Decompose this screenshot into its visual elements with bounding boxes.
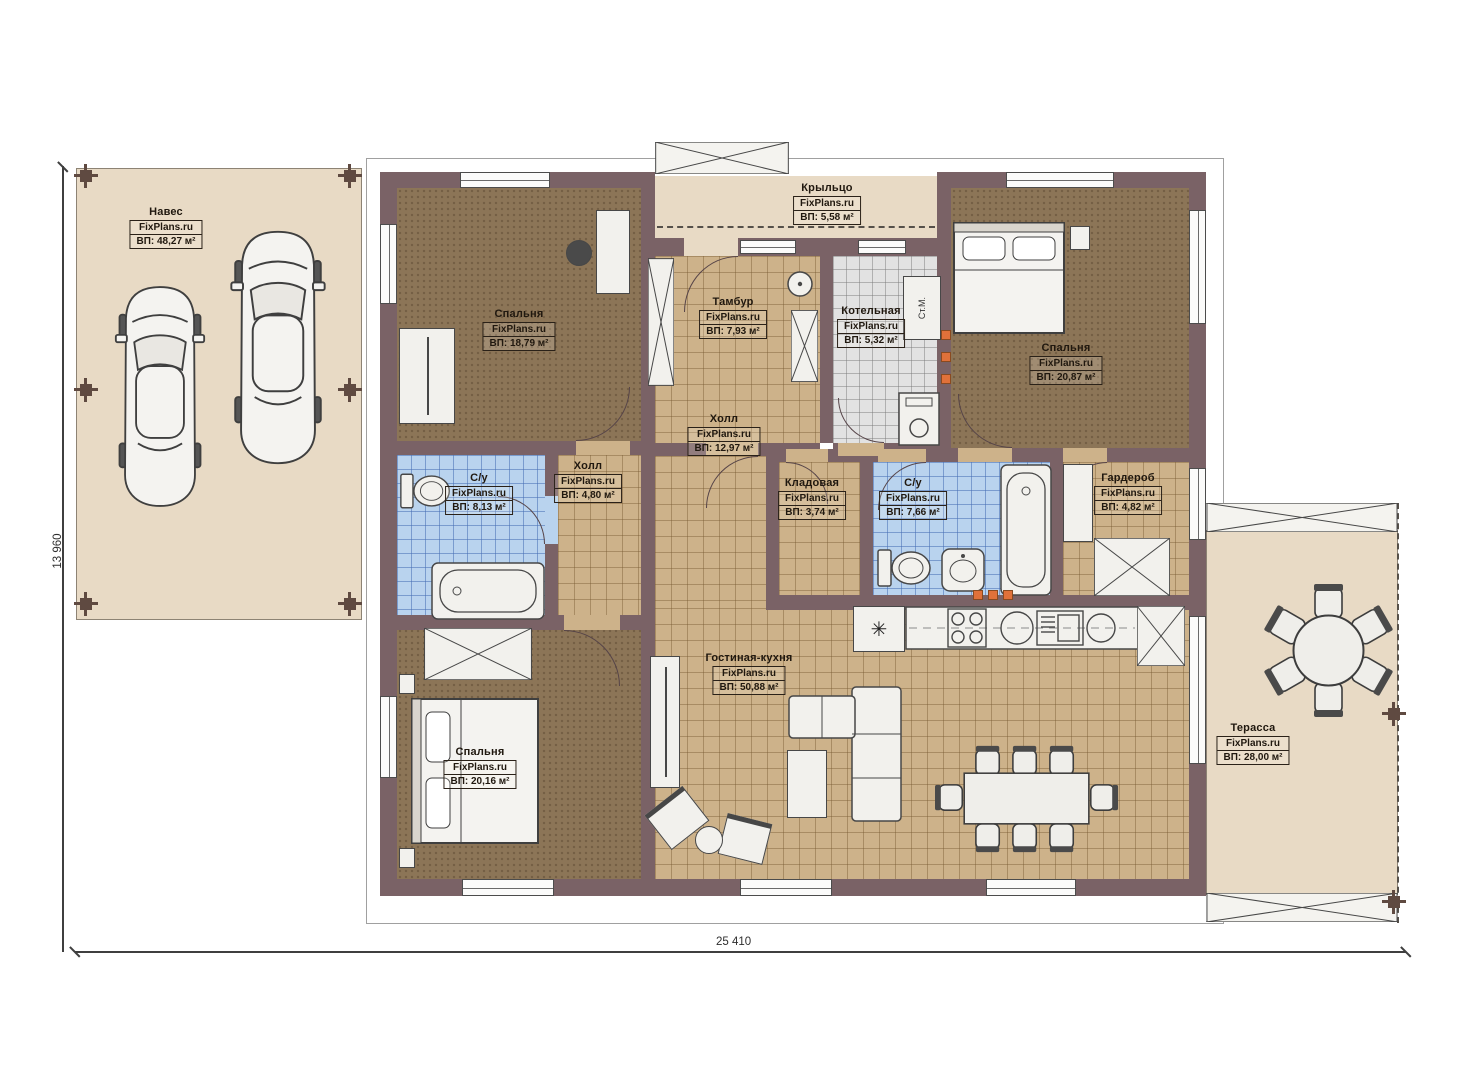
wardrobe-icon — [791, 310, 818, 382]
dimension-line-bottom — [75, 951, 1406, 953]
door-gap — [564, 615, 620, 630]
room-area: ВП: 7,93 м² — [700, 325, 766, 338]
window — [740, 240, 796, 254]
steps-icon — [655, 142, 789, 174]
window — [460, 172, 550, 188]
car-icon — [228, 226, 328, 469]
room-area: ВП: 48,27 м² — [130, 235, 201, 248]
porch-roof-line — [657, 226, 935, 228]
wall — [860, 462, 873, 595]
room-name: Спальня — [1029, 342, 1102, 354]
radiator-icon — [941, 352, 951, 362]
dimension-height: 13 960 — [52, 521, 64, 581]
door-gap — [545, 496, 558, 544]
column-icon — [80, 598, 92, 610]
room-area: ВП: 20,16 м² — [444, 775, 515, 788]
chair-icon — [566, 240, 592, 266]
room-area: ВП: 20,87 м² — [1030, 371, 1101, 384]
watermark: FixPlans.ru — [1217, 737, 1288, 751]
snowflake-icon: ✳ — [871, 617, 888, 642]
door-gap — [878, 449, 926, 462]
column-icon — [1388, 708, 1400, 720]
washing-machine-label: Ст.М. — [917, 297, 927, 319]
room-area: ВП: 4,82 м² — [1095, 501, 1161, 514]
watermark: FixPlans.ru — [838, 320, 904, 334]
room-label-bath2: С/у FixPlans.ru ВП: 7,66 м² — [879, 477, 947, 520]
bathtub-icon — [431, 562, 545, 620]
wardrobe-icon — [1094, 538, 1170, 596]
room-area: ВП: 5,58 м² — [794, 211, 860, 224]
watermark: FixPlans.ru — [700, 311, 766, 325]
room-name: Холл — [554, 460, 622, 472]
room-label-porch: Крыльцо FixPlans.ru ВП: 5,58 м² — [793, 182, 861, 225]
dining-table-icon — [935, 738, 1120, 860]
column-icon — [80, 384, 92, 396]
watermark: FixPlans.ru — [794, 197, 860, 211]
dimension-width: 25 410 — [716, 936, 751, 948]
column-icon — [80, 170, 92, 182]
room-name: Кладовая — [778, 477, 846, 489]
window — [380, 224, 397, 304]
watermark: FixPlans.ru — [779, 492, 845, 506]
room-name: С/у — [879, 477, 947, 489]
room-label-hall2: Холл FixPlans.ru ВП: 4,80 м² — [554, 460, 622, 503]
room-name: Крыльцо — [793, 182, 861, 194]
wardrobe-icon — [648, 258, 674, 386]
column-icon — [344, 598, 356, 610]
watermark: FixPlans.ru — [1030, 357, 1101, 371]
room-name: Навес — [129, 206, 202, 218]
coffee-table — [787, 750, 827, 818]
room-area: ВП: 12,97 м² — [688, 442, 759, 455]
room-area: ВП: 18,79 м² — [483, 337, 554, 350]
radiator-icon — [941, 330, 951, 340]
door-gap — [576, 441, 630, 455]
bed-icon — [953, 222, 1065, 334]
window — [462, 879, 554, 896]
room-label-tambour: Тамбур FixPlans.ru ВП: 7,93 м² — [699, 296, 767, 339]
lamp-icon — [786, 270, 814, 298]
steps-icon — [1206, 893, 1398, 922]
wardrobe-icon — [424, 628, 532, 680]
sink-icon — [941, 548, 985, 592]
room-name: Тамбур — [699, 296, 767, 308]
bathtub-icon — [1000, 464, 1052, 596]
room-label-carport: Навес FixPlans.ru ВП: 48,27 м² — [129, 206, 202, 249]
door-gap — [684, 238, 738, 256]
cabinet-icon — [1137, 606, 1185, 666]
window — [1006, 172, 1114, 188]
room-label-bedroom3: Спальня FixPlans.ru ВП: 20,16 м² — [443, 746, 516, 789]
watermark: FixPlans.ru — [130, 221, 201, 235]
room-area: ВП: 5,32 м² — [838, 334, 904, 347]
room-area: ВП: 50,88 м² — [713, 681, 784, 694]
window — [380, 696, 397, 778]
room-label-bath1: С/у FixPlans.ru ВП: 8,13 м² — [445, 472, 513, 515]
watermark: FixPlans.ru — [713, 667, 784, 681]
watermark: FixPlans.ru — [446, 487, 512, 501]
room-area: ВП: 8,13 м² — [446, 501, 512, 514]
wall — [766, 449, 779, 608]
fridge-icon: ✳ — [853, 606, 905, 652]
boiler-icon — [898, 392, 940, 446]
tv-stand — [650, 656, 680, 788]
room-label-living: Гостиная-кухня FixPlans.ru ВП: 50,88 м² — [705, 652, 792, 695]
round-table-icon — [1256, 578, 1401, 723]
steps-icon — [1206, 503, 1398, 532]
watermark: FixPlans.ru — [483, 323, 554, 337]
room-name: С/у — [445, 472, 513, 484]
room-area: ВП: 28,00 м² — [1217, 751, 1288, 764]
column-icon — [344, 170, 356, 182]
car-icon — [114, 280, 206, 513]
kitchen-counter — [905, 606, 1139, 650]
radiator-icon — [941, 374, 951, 384]
watermark: FixPlans.ru — [1095, 487, 1161, 501]
desk — [596, 210, 630, 294]
room-label-storage: Кладовая FixPlans.ru ВП: 3,74 м² — [778, 477, 846, 520]
watermark: FixPlans.ru — [688, 428, 759, 442]
room-label-wardrobe: Гардероб FixPlans.ru ВП: 4,82 м² — [1094, 472, 1162, 515]
shelf — [1063, 464, 1093, 542]
room-name: Спальня — [443, 746, 516, 758]
wall — [820, 256, 833, 443]
floor-plan: Ст.М. — [0, 0, 1473, 1080]
pouf — [695, 826, 723, 854]
column-icon — [344, 384, 356, 396]
toilet-icon — [876, 546, 934, 590]
socket-icon — [1003, 590, 1013, 600]
room-name: Холл — [687, 413, 760, 425]
room-label-bedroom1: Спальня FixPlans.ru ВП: 18,79 м² — [482, 308, 555, 351]
window — [740, 879, 832, 896]
room-label-terrace: Терасса FixPlans.ru ВП: 28,00 м² — [1216, 722, 1289, 765]
socket-icon — [973, 590, 983, 600]
room-name: Терасса — [1216, 722, 1289, 734]
door-gap — [958, 448, 1012, 462]
room-label-hall: Холл FixPlans.ru ВП: 12,97 м² — [687, 413, 760, 456]
nightstand — [1070, 226, 1090, 250]
cabinet-icon — [399, 328, 455, 424]
door-gap — [1063, 448, 1107, 462]
window — [858, 240, 906, 254]
column-icon — [1388, 896, 1400, 908]
window — [1189, 210, 1206, 324]
terrace-door — [1189, 616, 1206, 764]
nightstand — [399, 848, 415, 868]
room-area: ВП: 4,80 м² — [555, 489, 621, 502]
window — [1189, 468, 1206, 540]
room-name: Гостиная-кухня — [705, 652, 792, 664]
room-name: Гардероб — [1094, 472, 1162, 484]
washing-machine: Ст.М. — [903, 276, 941, 340]
room-area: ВП: 3,74 м² — [779, 506, 845, 519]
watermark: FixPlans.ru — [555, 475, 621, 489]
room-area: ВП: 7,66 м² — [880, 506, 946, 519]
window — [986, 879, 1076, 896]
room-label-boiler: Котельная FixPlans.ru ВП: 5,32 м² — [837, 305, 905, 348]
room-name: Котельная — [837, 305, 905, 317]
socket-icon — [988, 590, 998, 600]
watermark: FixPlans.ru — [444, 761, 515, 775]
watermark: FixPlans.ru — [880, 492, 946, 506]
nightstand — [399, 674, 415, 694]
door-gap — [786, 449, 828, 462]
room-label-bedroom2: Спальня FixPlans.ru ВП: 20,87 м² — [1029, 342, 1102, 385]
room-name: Спальня — [482, 308, 555, 320]
